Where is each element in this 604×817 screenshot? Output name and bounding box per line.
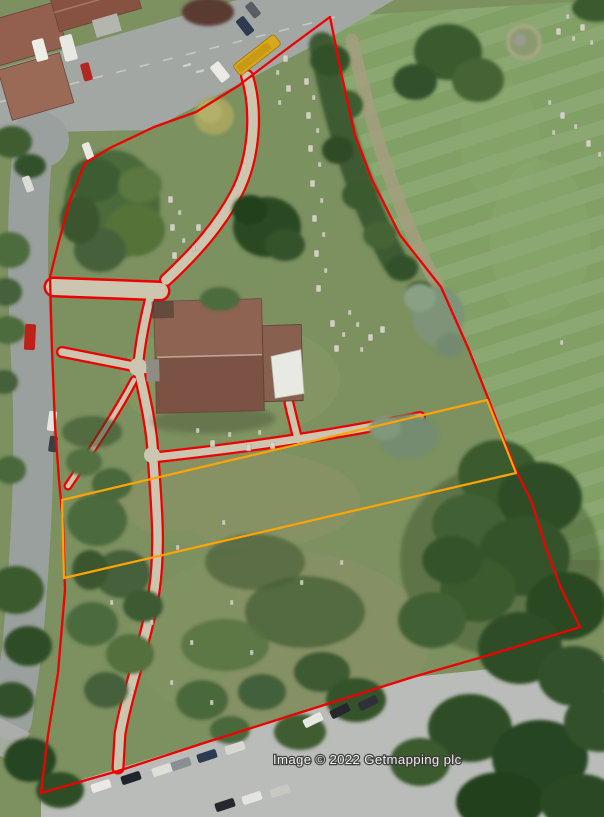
circular-mound: [508, 26, 540, 58]
red-truck: [24, 324, 36, 351]
aerial-photo: Image © 2022 Getmapping plc: [0, 0, 604, 817]
church-white-roof: [271, 350, 304, 399]
church-porch: [146, 359, 160, 381]
church-nave-roof-south: [155, 355, 264, 414]
aerial-photo-viewport: Image © 2022 Getmapping plc: [0, 0, 604, 817]
watermark-credit: Image © 2022 Getmapping plc: [273, 752, 462, 767]
